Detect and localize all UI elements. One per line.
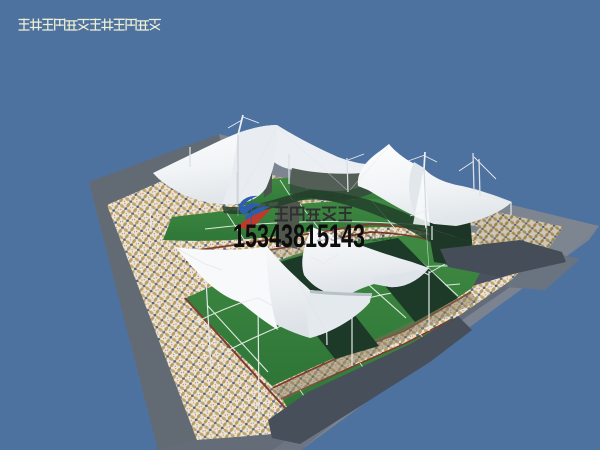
svg-text:15343815143: 15343815143: [233, 218, 365, 254]
